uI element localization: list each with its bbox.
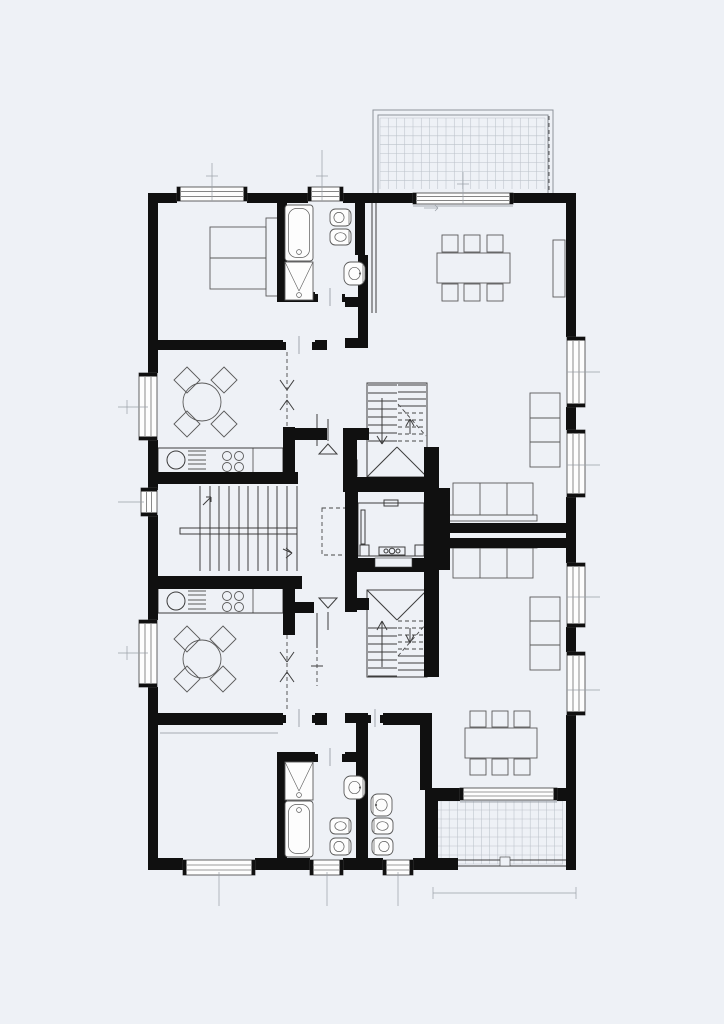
floor-plan-page [0,0,724,1024]
furniture-layer [174,218,565,775]
wall-layer [148,193,576,870]
floor-plan [0,0,724,1024]
